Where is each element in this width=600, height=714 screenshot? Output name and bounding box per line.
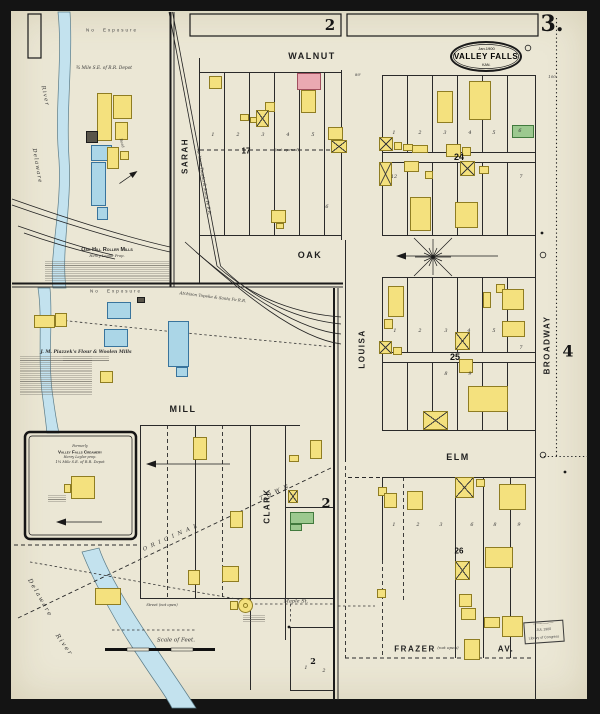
delaware-river-upper <box>52 12 71 288</box>
section-marker <box>540 252 546 258</box>
compass-rose <box>414 238 452 276</box>
delaware-river-middle <box>38 288 59 433</box>
north-arrow-main <box>396 253 498 260</box>
scale-bar <box>105 648 215 651</box>
north-arrow-creamery <box>56 519 102 526</box>
north-arrow-inset <box>118 169 139 187</box>
corner-dot <box>564 471 567 474</box>
map-linework <box>0 0 600 714</box>
corner-dot <box>288 626 291 629</box>
corner-dot <box>541 232 544 235</box>
north-arrow-plat <box>146 461 230 468</box>
delaware-river-lower <box>82 548 196 708</box>
section-marker <box>540 452 546 458</box>
section-marker <box>525 45 531 51</box>
creamery-inset-frame <box>25 432 136 539</box>
sanborn-map-sheet: 123456123456127123457891236891280'100 3.… <box>0 0 600 714</box>
